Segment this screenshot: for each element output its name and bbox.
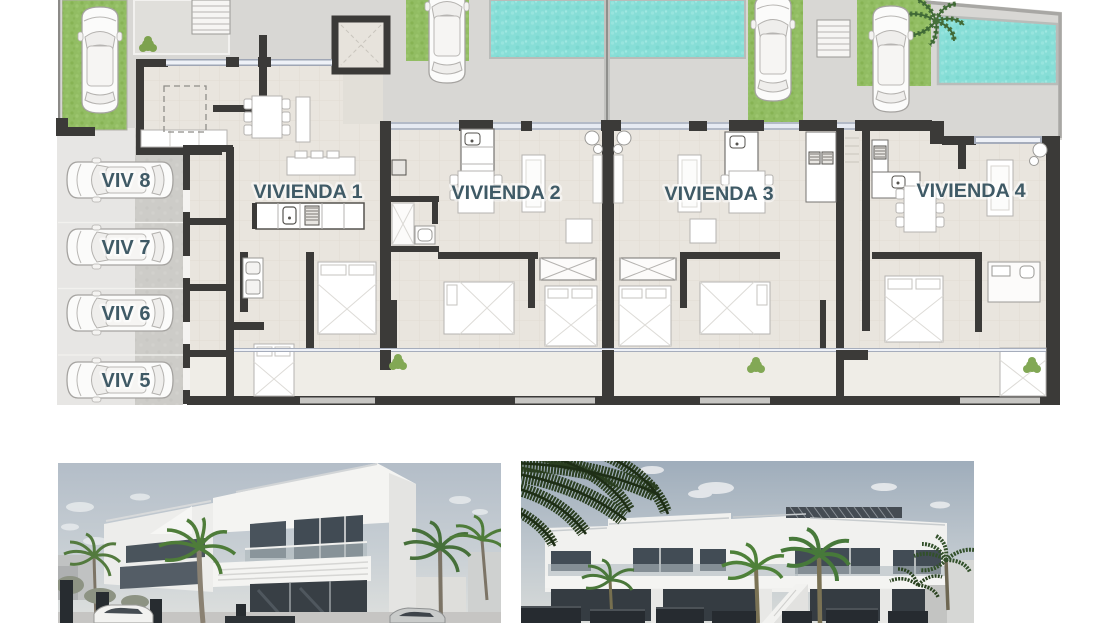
svg-text:VIV 8: VIV 8	[102, 170, 151, 192]
svg-text:VIV 7: VIV 7	[102, 237, 151, 259]
svg-text:VIVIENDA 1: VIVIENDA 1	[253, 181, 362, 203]
svg-text:VIVIENDA 3: VIVIENDA 3	[664, 183, 773, 205]
svg-text:VIVIENDA 2: VIVIENDA 2	[451, 182, 560, 204]
svg-text:VIV 6: VIV 6	[102, 303, 151, 325]
svg-text:VIV 5: VIV 5	[102, 370, 151, 392]
svg-text:VIVIENDA 4: VIVIENDA 4	[916, 180, 1025, 202]
